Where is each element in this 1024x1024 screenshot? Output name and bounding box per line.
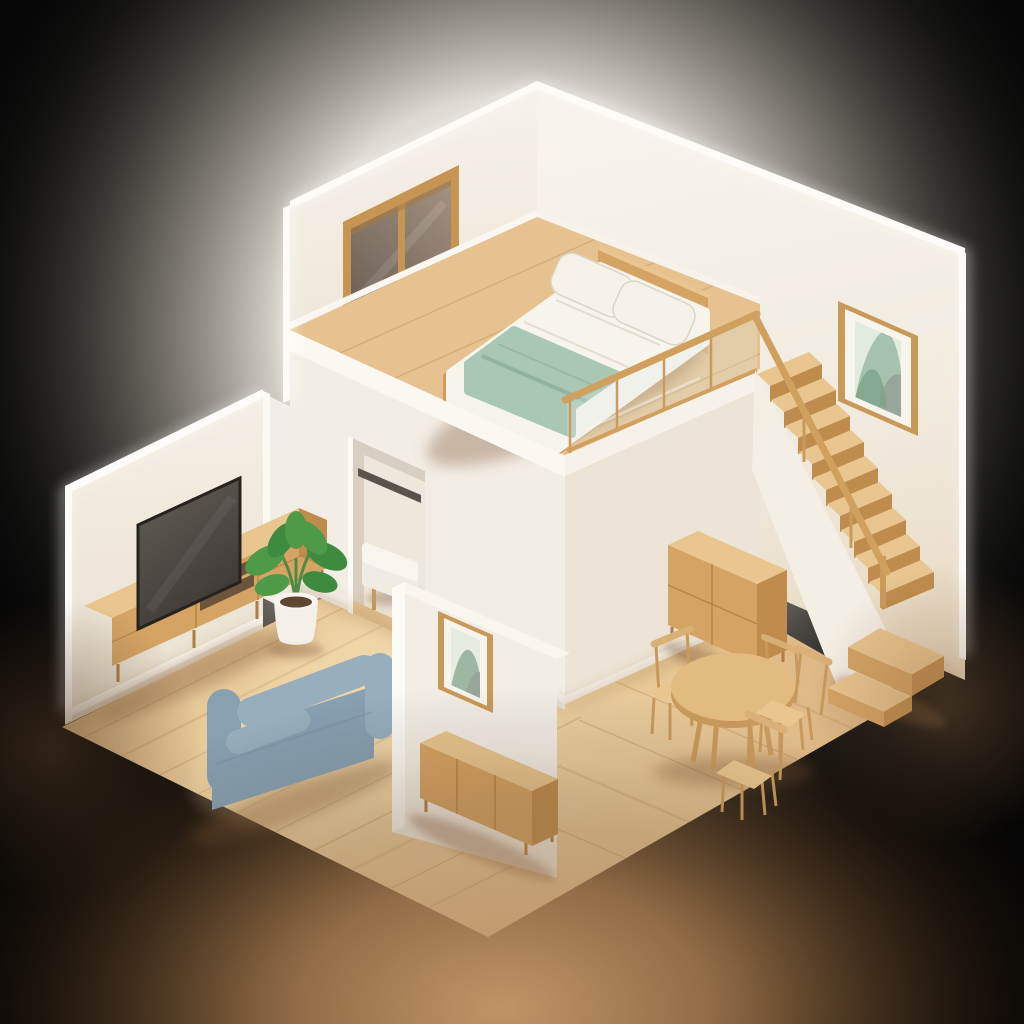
scene-root <box>0 0 1024 1024</box>
foreground-glow <box>0 560 1024 1024</box>
